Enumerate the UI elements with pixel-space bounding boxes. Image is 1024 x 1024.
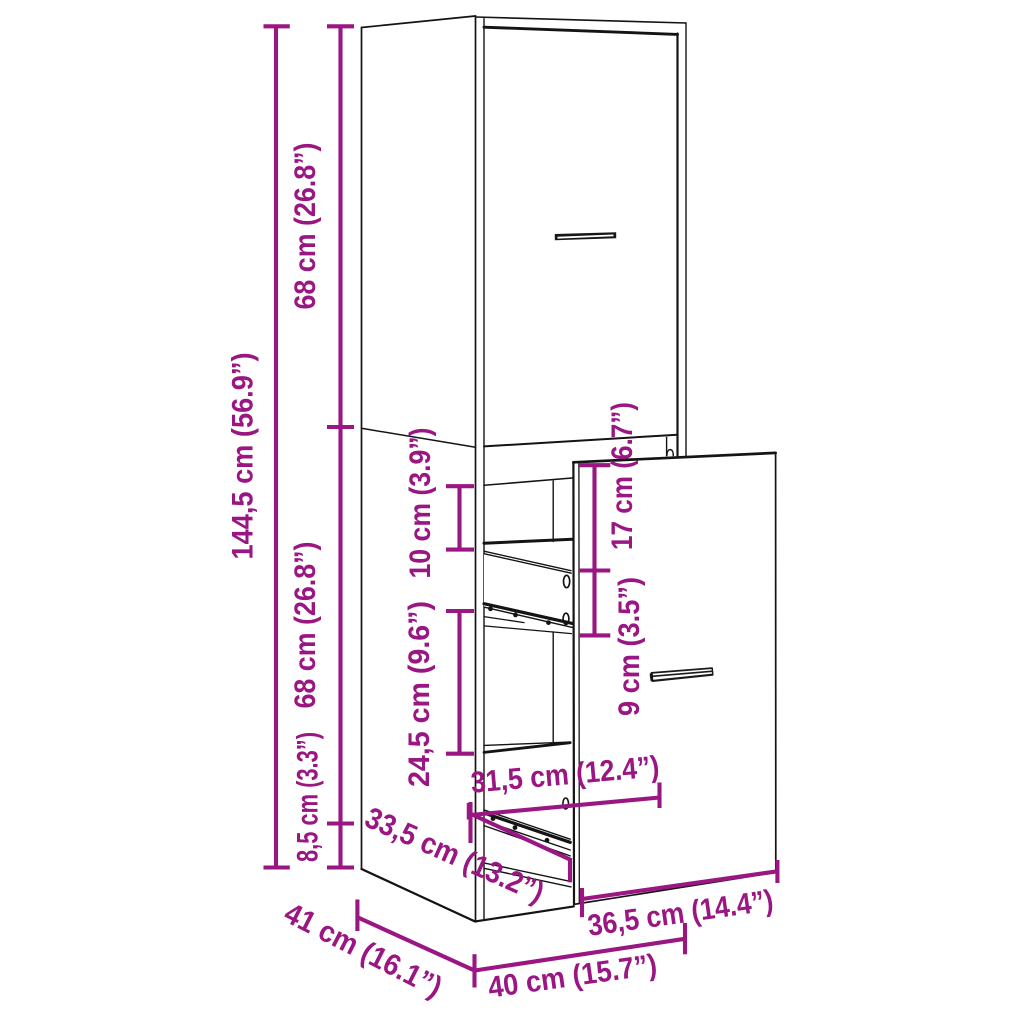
svg-text:8,5 cm (3.3”): 8,5 cm (3.3”) [292, 732, 325, 862]
svg-text:17 cm (6.7”): 17 cm (6.7”) [606, 402, 639, 550]
svg-text:68 cm (26.8”): 68 cm (26.8”) [289, 542, 322, 709]
svg-text:144,5 cm (56.9”): 144,5 cm (56.9”) [227, 353, 260, 560]
svg-text:9 cm (3.5”): 9 cm (3.5”) [613, 577, 646, 716]
svg-text:24,5 cm (9.6”): 24,5 cm (9.6”) [403, 601, 436, 787]
svg-text:68 cm (26.8”): 68 cm (26.8”) [289, 143, 322, 310]
svg-text:10 cm (3.9”): 10 cm (3.9”) [404, 428, 437, 579]
